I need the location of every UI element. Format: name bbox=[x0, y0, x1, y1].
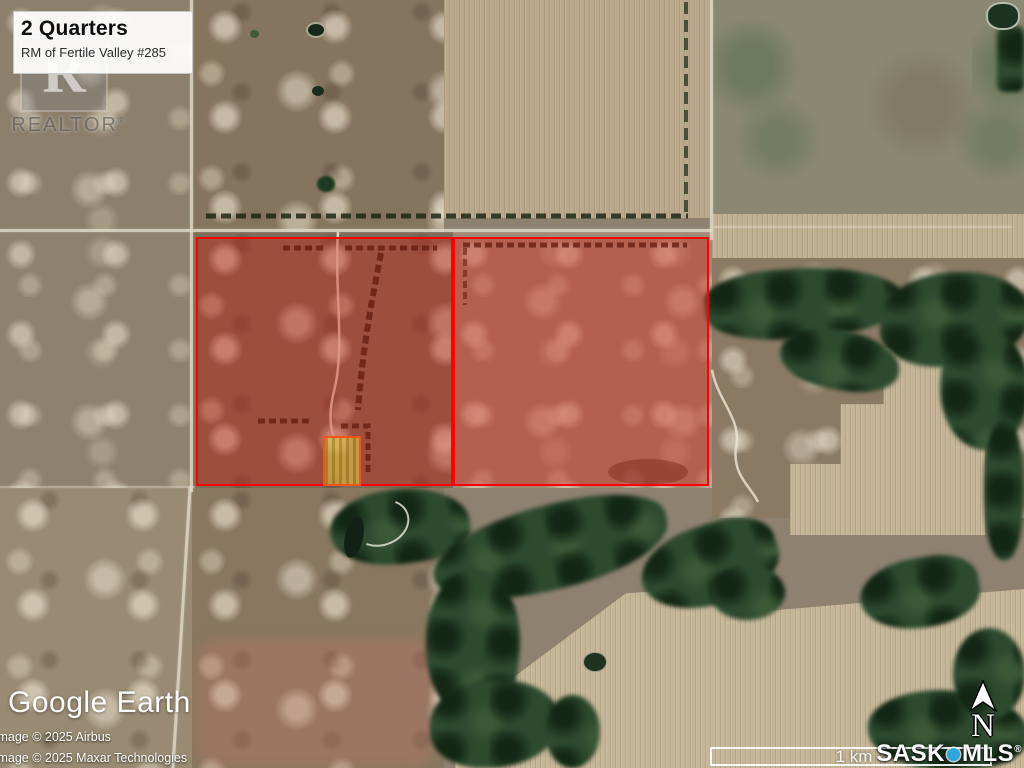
realtor-wordmark: REALTOR® bbox=[4, 114, 134, 137]
scale-label: 1 km bbox=[836, 747, 873, 767]
mls-suffix: MLS bbox=[962, 740, 1014, 768]
listing-title: 2 Quarters bbox=[21, 17, 184, 41]
google-earth-wordmark: Google Earth bbox=[8, 686, 191, 720]
registered-mark: ® bbox=[118, 115, 127, 125]
mls-prefix: SASK bbox=[876, 740, 945, 768]
copyright-airbus: Image © 2025 Airbus bbox=[0, 730, 111, 744]
yard-exclusion-overlay bbox=[323, 436, 361, 486]
parcel-east-overlay bbox=[453, 237, 709, 486]
north-indicator: N bbox=[960, 680, 1006, 742]
listing-subtitle: RM of Fertile Valley #285 bbox=[21, 45, 184, 60]
north-label: N bbox=[960, 712, 1006, 742]
mls-dot-icon bbox=[947, 748, 960, 761]
listing-card: 2 Quarters RM of Fertile Valley #285 bbox=[13, 11, 193, 74]
registered-mark: ® bbox=[1014, 744, 1022, 755]
sask-mls-logo: SASKMLS® bbox=[876, 740, 1022, 768]
satellite-map: R REALTOR® 2 Quarters RM of Fertile Vall… bbox=[0, 0, 1024, 768]
copyright-maxar: Image © 2025 Maxar Technologies bbox=[0, 751, 187, 765]
